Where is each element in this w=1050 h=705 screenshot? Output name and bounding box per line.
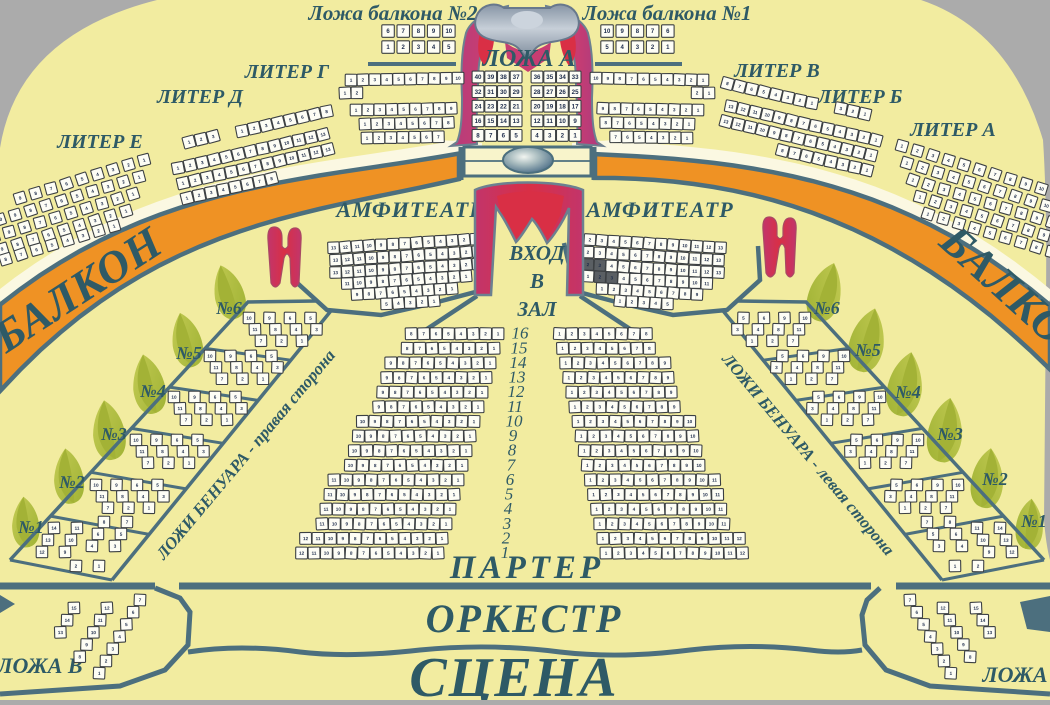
svg-text:12: 12 (704, 269, 710, 274)
svg-text:19: 19 (546, 103, 553, 110)
svg-text:11: 11 (872, 406, 877, 411)
svg-text:7: 7 (221, 377, 224, 382)
svg-text:17: 17 (572, 103, 579, 110)
svg-text:10: 10 (877, 395, 883, 400)
svg-text:18: 18 (559, 103, 566, 110)
svg-text:10: 10 (332, 521, 338, 526)
svg-text:11: 11 (355, 244, 361, 249)
svg-text:5: 5 (639, 478, 642, 483)
svg-text:10: 10 (445, 29, 452, 35)
svg-text:10: 10 (699, 477, 705, 482)
svg-text:14: 14 (51, 526, 57, 531)
svg-text:6: 6 (667, 551, 670, 556)
svg-text:11: 11 (797, 327, 802, 332)
svg-text:37: 37 (513, 74, 520, 81)
svg-text:5: 5 (617, 375, 620, 380)
svg-text:13: 13 (718, 245, 724, 250)
svg-text:5: 5 (514, 133, 518, 140)
svg-text:11: 11 (950, 494, 955, 499)
svg-text:12: 12 (706, 245, 712, 250)
svg-text:12: 12 (299, 551, 305, 556)
svg-text:36: 36 (534, 74, 541, 81)
svg-text:6: 6 (502, 133, 506, 140)
svg-text:7: 7 (489, 133, 493, 140)
svg-text:14: 14 (65, 618, 71, 623)
svg-text:31: 31 (487, 89, 494, 96)
svg-text:10: 10 (706, 507, 712, 512)
svg-text:Ложа балкона №2: Ложа балкона №2 (307, 1, 478, 25)
svg-text:10: 10 (91, 630, 97, 635)
svg-text:13: 13 (58, 630, 64, 635)
svg-text:10: 10 (559, 118, 566, 125)
svg-text:4: 4 (961, 544, 964, 549)
svg-text:№2: №2 (58, 472, 84, 492)
svg-text:10: 10 (693, 448, 699, 453)
svg-text:29: 29 (513, 89, 520, 96)
svg-text:25: 25 (572, 89, 579, 96)
svg-text:13: 13 (513, 118, 520, 125)
svg-text:1: 1 (262, 376, 265, 381)
svg-text:1: 1 (481, 390, 484, 395)
svg-text:4: 4 (400, 551, 403, 556)
svg-text:11: 11 (312, 551, 317, 556)
svg-text:10: 10 (841, 354, 847, 359)
svg-text:№1: №1 (17, 517, 43, 537)
svg-text:10: 10 (593, 76, 599, 81)
svg-text:11: 11 (692, 269, 698, 274)
svg-text:№1: №1 (1020, 511, 1046, 531)
svg-text:6: 6 (132, 610, 135, 615)
svg-text:7: 7 (185, 417, 188, 422)
svg-text:28: 28 (534, 89, 541, 96)
svg-text:13: 13 (716, 270, 722, 275)
svg-text:№4: №4 (139, 381, 165, 401)
svg-text:7: 7 (378, 492, 381, 497)
svg-text:12: 12 (345, 257, 351, 263)
svg-text:12: 12 (303, 536, 309, 541)
svg-text:10: 10 (207, 354, 213, 359)
svg-text:6: 6 (955, 532, 958, 537)
svg-text:10: 10 (336, 507, 342, 512)
svg-text:7: 7 (670, 507, 673, 512)
svg-text:10: 10 (690, 434, 696, 439)
svg-text:2: 2 (561, 133, 565, 140)
svg-text:№6: №6 (813, 298, 839, 318)
svg-text:1: 1 (573, 133, 577, 140)
svg-text:10: 10 (915, 438, 921, 443)
svg-text:30: 30 (500, 89, 507, 96)
svg-text:ЛИТЕР В: ЛИТЕР В (733, 60, 819, 82)
svg-text:10: 10 (604, 29, 611, 35)
svg-text:3: 3 (617, 492, 620, 497)
svg-text:№4: №4 (894, 382, 920, 402)
svg-text:11: 11 (721, 521, 727, 526)
svg-text:1: 1 (188, 460, 191, 465)
svg-text:АМФИТЕАТР: АМФИТЕАТР (334, 197, 483, 222)
svg-text:11: 11 (324, 507, 329, 512)
svg-text:10: 10 (368, 268, 374, 273)
svg-text:10: 10 (356, 280, 362, 285)
svg-text:15: 15 (71, 606, 77, 611)
svg-text:АМФИТЕАТР: АМФИТЕАТР (584, 197, 733, 222)
svg-text:11: 11 (328, 492, 333, 497)
svg-text:10: 10 (696, 463, 702, 468)
svg-text:2: 2 (884, 460, 887, 465)
svg-text:3: 3 (374, 77, 377, 82)
svg-text:10: 10 (360, 419, 366, 424)
svg-text:7: 7 (630, 76, 633, 81)
svg-text:7: 7 (398, 419, 401, 424)
svg-text:ЛОЖА В: ЛОЖА В (0, 653, 83, 678)
svg-text:11: 11 (704, 281, 709, 286)
svg-text:ЛИТЕР Г: ЛИТЕР Г (244, 61, 330, 83)
svg-text:13: 13 (333, 258, 339, 263)
svg-text:15: 15 (487, 118, 494, 125)
svg-text:10: 10 (340, 492, 346, 497)
svg-text:11: 11 (98, 618, 104, 623)
svg-text:№3: №3 (936, 424, 962, 444)
svg-text:27: 27 (546, 89, 553, 96)
svg-text:10: 10 (366, 243, 372, 249)
svg-text:9: 9 (573, 118, 577, 125)
svg-text:№6: №6 (215, 298, 241, 318)
svg-text:№3: №3 (100, 424, 126, 444)
svg-text:ЛОЖА А: ЛОЖА А (482, 46, 576, 72)
svg-text:11: 11 (692, 256, 697, 261)
svg-text:11: 11 (910, 449, 915, 454)
svg-text:2: 2 (674, 135, 677, 140)
svg-text:10: 10 (368, 255, 374, 260)
svg-text:11: 11 (694, 244, 700, 249)
svg-text:8: 8 (398, 375, 401, 380)
svg-text:11: 11 (947, 618, 952, 623)
svg-text:ЛИТЕР Д: ЛИТЕР Д (156, 86, 244, 108)
svg-text:13: 13 (716, 258, 722, 263)
svg-text:ЗАЛ: ЗАЛ (516, 297, 557, 321)
svg-text:11: 11 (140, 449, 145, 454)
svg-text:6: 6 (395, 478, 398, 483)
svg-text:22: 22 (500, 103, 507, 110)
svg-text:3: 3 (162, 494, 165, 499)
svg-text:39: 39 (487, 74, 494, 81)
svg-text:Ложа балкона №1: Ложа балкона №1 (581, 1, 751, 25)
svg-text:21: 21 (513, 103, 520, 110)
svg-text:11: 11 (718, 507, 723, 512)
svg-text:ЛИТЕР Б: ЛИТЕР Б (817, 86, 903, 108)
svg-text:2: 2 (356, 90, 359, 95)
svg-text:14: 14 (997, 526, 1003, 531)
svg-text:38: 38 (500, 74, 507, 81)
svg-text:11: 11 (727, 551, 732, 556)
svg-text:3: 3 (388, 121, 391, 126)
svg-text:10: 10 (712, 536, 718, 541)
svg-text:12: 12 (39, 550, 45, 555)
svg-text:12: 12 (940, 606, 946, 611)
svg-text:16: 16 (475, 118, 482, 125)
svg-text:5: 5 (633, 448, 636, 453)
svg-text:11: 11 (319, 521, 325, 526)
svg-text:10: 10 (715, 551, 721, 556)
svg-text:ПАРТЕР: ПАРТЕР (449, 550, 604, 586)
svg-text:3: 3 (548, 133, 552, 140)
svg-text:10: 10 (703, 492, 709, 497)
svg-text:ЛИТЕР Е: ЛИТЕР Е (56, 131, 142, 153)
svg-text:9: 9 (936, 483, 939, 488)
svg-text:35: 35 (546, 74, 553, 81)
svg-text:10: 10 (356, 434, 362, 439)
svg-text:6: 6 (97, 532, 100, 537)
svg-text:ОРКЕСТР: ОРКЕСТР (426, 596, 623, 641)
svg-text:11: 11 (836, 365, 841, 370)
svg-text:12: 12 (534, 118, 541, 125)
svg-text:15: 15 (973, 606, 979, 611)
svg-text:4: 4 (142, 494, 145, 499)
svg-text:13: 13 (331, 245, 337, 250)
svg-text:9: 9 (962, 642, 965, 647)
svg-text:6: 6 (916, 610, 919, 615)
svg-text:В: В (529, 269, 544, 293)
svg-text:3: 3 (602, 419, 605, 424)
svg-text:12: 12 (704, 257, 710, 262)
svg-text:11: 11 (214, 365, 219, 370)
svg-text:12: 12 (345, 269, 351, 274)
svg-text:6: 6 (642, 77, 645, 82)
svg-text:11: 11 (345, 281, 350, 286)
svg-text:34: 34 (559, 74, 566, 81)
svg-text:ЛОЖА: ЛОЖА (981, 662, 1047, 687)
svg-text:10: 10 (348, 463, 354, 468)
svg-text:13: 13 (1003, 538, 1009, 543)
svg-text:10: 10 (980, 538, 986, 543)
svg-text:10: 10 (680, 268, 686, 273)
svg-text:10: 10 (324, 551, 330, 556)
svg-text:8: 8 (476, 133, 480, 140)
svg-text:9: 9 (858, 395, 861, 400)
svg-text:32: 32 (475, 89, 482, 96)
svg-text:10: 10 (328, 536, 334, 541)
svg-text:10: 10 (802, 316, 808, 321)
svg-text:11: 11 (75, 526, 80, 531)
svg-text:12: 12 (740, 551, 746, 556)
svg-text:11: 11 (177, 406, 182, 411)
svg-text:40: 40 (475, 74, 482, 81)
svg-text:№2: №2 (981, 469, 1007, 489)
svg-text:4: 4 (535, 133, 539, 140)
svg-text:23: 23 (487, 103, 494, 110)
svg-text:6: 6 (664, 536, 667, 541)
svg-text:13: 13 (987, 630, 993, 635)
svg-text:10: 10 (456, 76, 462, 81)
svg-text:10: 10 (687, 419, 693, 424)
svg-text:№5: №5 (175, 343, 201, 363)
svg-text:10: 10 (955, 483, 961, 488)
svg-text:11: 11 (546, 118, 553, 125)
svg-text:СЦЕНА: СЦЕНА (409, 647, 618, 700)
svg-text:ВХОД: ВХОД (508, 241, 565, 265)
svg-text:20: 20 (534, 103, 541, 110)
svg-text:11: 11 (253, 327, 258, 332)
svg-text:11: 11 (975, 526, 980, 531)
svg-text:10: 10 (692, 280, 698, 285)
svg-text:10: 10 (133, 438, 139, 443)
svg-text:7: 7 (792, 339, 795, 344)
svg-text:13: 13 (45, 538, 51, 543)
svg-text:14: 14 (500, 118, 507, 125)
svg-text:5: 5 (234, 395, 237, 400)
svg-text:10: 10 (171, 395, 177, 400)
svg-text:3: 3 (428, 492, 431, 497)
svg-text:10: 10 (709, 521, 715, 526)
svg-text:16: 16 (512, 324, 530, 343)
svg-text:9: 9 (346, 521, 349, 526)
svg-text:10: 10 (246, 316, 252, 321)
svg-text:13: 13 (333, 270, 339, 275)
svg-text:12: 12 (1009, 550, 1015, 555)
svg-text:10: 10 (93, 483, 99, 488)
svg-text:14: 14 (980, 618, 986, 623)
svg-text:11: 11 (724, 536, 729, 541)
svg-text:11: 11 (715, 492, 720, 497)
svg-text:5: 5 (120, 532, 123, 537)
svg-text:6: 6 (838, 395, 841, 400)
svg-text:10: 10 (344, 478, 350, 483)
svg-text:11: 11 (712, 477, 717, 482)
svg-text:11: 11 (100, 494, 105, 499)
svg-text:ЛИТЕР А: ЛИТЕР А (909, 119, 995, 141)
svg-text:11: 11 (316, 536, 321, 541)
svg-text:11: 11 (332, 478, 337, 483)
svg-text:№5: №5 (854, 340, 880, 360)
svg-text:24: 24 (475, 103, 482, 110)
svg-text:11: 11 (357, 269, 363, 274)
svg-text:9: 9 (698, 521, 701, 526)
svg-text:12: 12 (104, 606, 110, 611)
svg-text:12: 12 (343, 244, 349, 250)
svg-text:3: 3 (240, 406, 243, 411)
svg-text:10: 10 (68, 538, 74, 543)
svg-text:26: 26 (559, 89, 566, 96)
svg-text:12: 12 (737, 536, 743, 541)
svg-text:10: 10 (352, 448, 358, 453)
svg-text:10: 10 (954, 630, 960, 635)
svg-text:33: 33 (572, 74, 579, 81)
svg-text:10: 10 (682, 243, 688, 248)
svg-text:10: 10 (680, 255, 686, 260)
